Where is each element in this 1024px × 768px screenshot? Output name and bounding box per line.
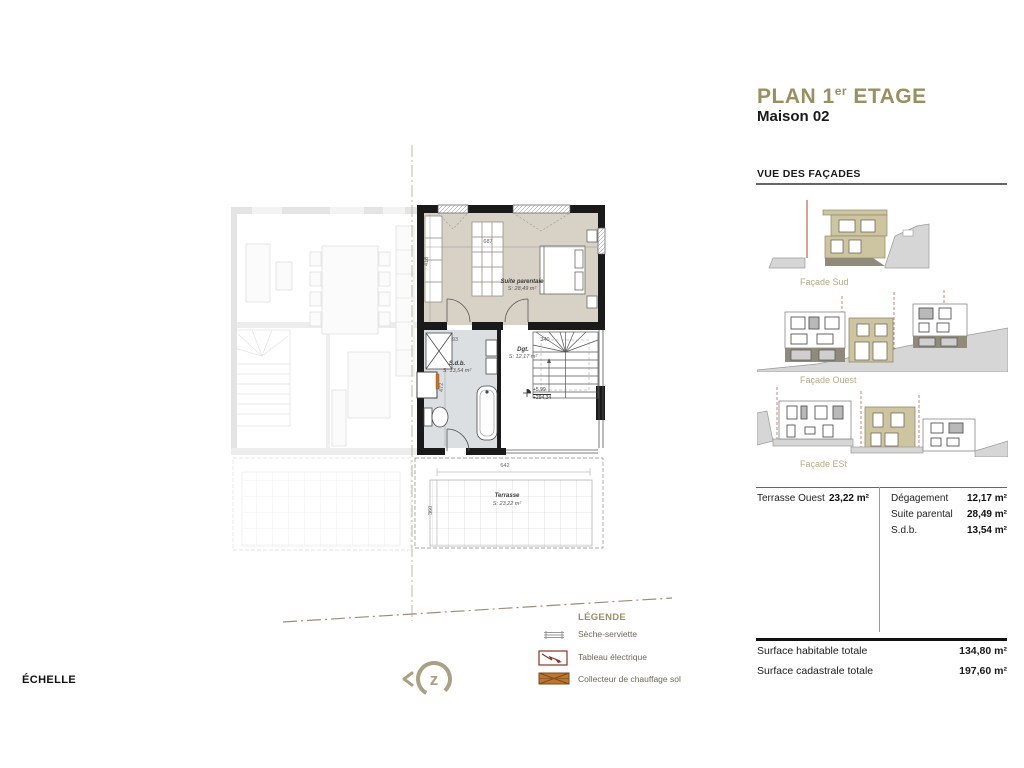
area-name: Dégagement xyxy=(891,493,948,504)
total-name: Surface cadastrale totale xyxy=(757,665,873,677)
total-row-habitable: Surface habitable totale 134,80 m² xyxy=(757,645,1007,657)
level-absolute: +294,34 xyxy=(533,394,551,402)
level-relative: +5,99 xyxy=(533,387,546,393)
dim-suite-depth: 418 xyxy=(425,257,431,266)
dim-sdb-depth: 472 xyxy=(440,383,446,392)
toilet-tank xyxy=(424,408,432,426)
legend-item-label: Tableau électrique xyxy=(578,652,647,662)
towel-radiator-icon xyxy=(542,630,566,640)
areas-table-top-line xyxy=(756,487,1007,488)
level-marker-cross xyxy=(523,389,531,397)
electrical-panel-icon xyxy=(538,650,568,666)
area-row-sdb: S.d.b. 13,54 m² xyxy=(891,525,1007,536)
total-value: 134,80 m² xyxy=(959,645,1007,657)
dgt-room-area: S: 12,17 m² xyxy=(498,355,548,361)
title-superscript: er xyxy=(835,84,847,98)
facades-heading: VUE DES FAÇADES xyxy=(757,168,861,180)
sdb-room-name: S.d.b. xyxy=(432,361,482,367)
floor-plan-drawing xyxy=(180,140,680,640)
dim-sdb-width: 93 xyxy=(448,338,462,344)
facade-sud-drawing xyxy=(765,196,965,276)
facade-ouest-label: Façade Ouest xyxy=(800,375,857,385)
area-name: Terrasse Ouest xyxy=(757,493,825,504)
area-value: 12,17 m² xyxy=(967,493,1007,504)
sink xyxy=(486,340,497,356)
floor-heating-collector-icon xyxy=(538,672,570,685)
page-subtitle: Maison 02 xyxy=(757,108,830,125)
niche xyxy=(417,372,437,398)
pillow xyxy=(575,250,583,268)
area-row-terrasse-ouest: Terrasse Ouest 23,22 m² xyxy=(757,493,869,504)
legend-heading: LÉGENDE xyxy=(578,612,626,623)
area-name: S.d.b. xyxy=(891,525,917,536)
sink xyxy=(486,358,497,374)
area-value: 23,22 m² xyxy=(829,493,869,504)
svg-text:z: z xyxy=(430,670,439,689)
suite-room-area: S: 28,49 m² xyxy=(492,287,552,293)
areas-table-divider xyxy=(879,487,880,632)
terrace-room-area: S: 23,22 m² xyxy=(477,502,537,508)
dim-suite-width: 687 xyxy=(478,240,498,246)
area-value: 28,49 m² xyxy=(967,509,1007,520)
facade-sud-label: Façade Sud xyxy=(800,277,849,287)
dim-stair-width: 340 xyxy=(536,338,554,344)
total-name: Surface habitable totale xyxy=(757,645,867,657)
total-value: 197,60 m² xyxy=(959,665,1007,677)
total-row-cadastrale: Surface cadastrale totale 197,60 m² xyxy=(757,665,1007,677)
legend-item-label: Sèche-serviette xyxy=(578,629,637,639)
suite-room-name: Suite parentale xyxy=(492,279,552,285)
pillow xyxy=(575,272,583,290)
floor-plan-sheet: Suite parentale S: 28,49 m² S.d.b. S: 13… xyxy=(0,0,1024,768)
facade-est-label: Façade ESt xyxy=(800,459,847,469)
terrace-room-name: Terrasse xyxy=(477,493,537,499)
nightstand xyxy=(587,230,597,242)
toilet-bowl xyxy=(432,407,448,427)
facades-divider xyxy=(756,183,1007,185)
neighbour-unit-faded xyxy=(231,207,417,550)
facade-est-drawing xyxy=(757,385,1008,457)
area-row-degagement: Dégagement 12,17 m² xyxy=(891,493,1007,504)
totals-top-line xyxy=(756,638,1007,641)
dim-terrace-depth: 360 xyxy=(429,506,435,515)
scale-label: ÉCHELLE xyxy=(22,674,76,686)
page-title: PLAN 1er ETAGE xyxy=(757,84,927,109)
dim-terrace-width: 642 xyxy=(493,464,517,470)
sdb-room-area: S: 13,54 m² xyxy=(432,369,482,375)
area-value: 13,54 m² xyxy=(967,525,1007,536)
nightstand xyxy=(587,296,597,308)
level-marker-values: +5,99 +294,34 xyxy=(533,387,551,401)
z-logo: z xyxy=(398,656,456,702)
legend-item-label: Collecteur de chauffage sol xyxy=(578,674,681,684)
area-row-suite-parental: Suite parental 28,49 m² xyxy=(891,509,1007,520)
dgt-room-name: Dgt. xyxy=(498,347,548,353)
facade-ouest-drawing xyxy=(757,290,1008,372)
area-name: Suite parental xyxy=(891,509,953,520)
